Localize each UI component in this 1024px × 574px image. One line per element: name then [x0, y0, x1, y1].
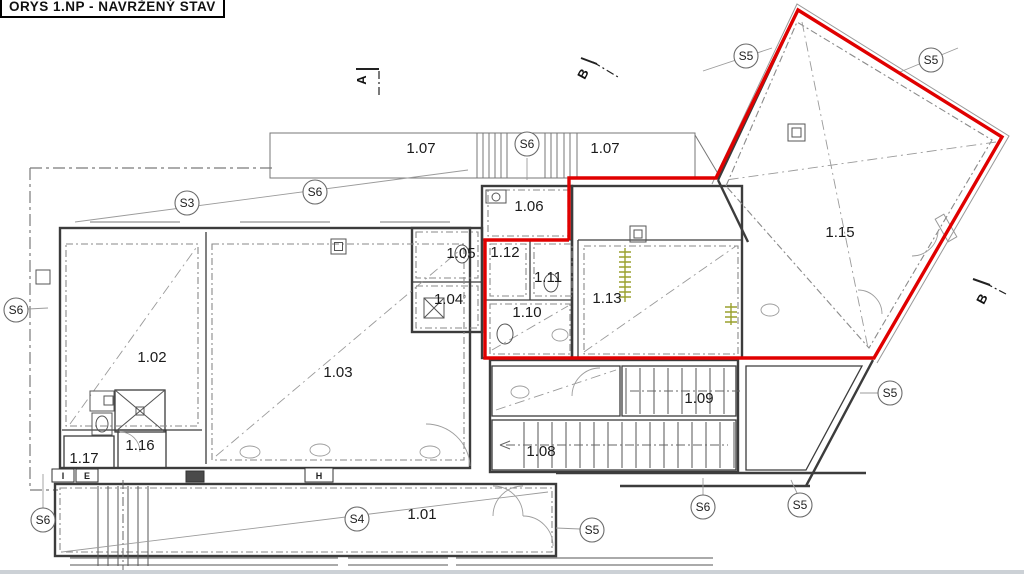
room-label-1-16: 1.16: [125, 437, 154, 454]
cut-marker-line-b: [985, 283, 1006, 294]
toilet-icon: [497, 324, 513, 344]
section-bubble-label-s6: S6: [696, 500, 711, 514]
column-icon: [331, 239, 346, 254]
section-bubble-label-s5: S5: [883, 386, 898, 400]
room-label-1-11: 1.11: [534, 269, 562, 286]
room-label-1-07: 1.07: [406, 140, 435, 157]
section-bubble-label-s6: S6: [9, 303, 24, 317]
fixtures: [36, 124, 805, 435]
floorplan-svg: 1.011.021.031.04▫1.051.061.071.071.081.0…: [0, 0, 1024, 574]
section-bubble-label-s6: S6: [308, 185, 323, 199]
section-bubble-label-s5: S5: [924, 53, 939, 67]
drawing-title: ORYS 1.NP - NAVRŽENÝ STAV: [0, 0, 225, 18]
room-label-1-12: 1.12: [490, 244, 519, 261]
room-label-1-01: 1.01: [407, 506, 436, 523]
room-label-1-15: 1.15: [825, 224, 854, 241]
wall-tag-label-i: I: [62, 471, 65, 481]
section-bubble-label-s4: S4: [350, 512, 365, 526]
section-cut-marker-a-0: A: [354, 75, 369, 85]
room-label-1-06: 1.06: [514, 198, 543, 215]
room-label-1-10: 1.10: [512, 304, 541, 321]
room-label-1-09: 1.09: [684, 390, 713, 407]
wall-tag-box-dark-2: [186, 471, 204, 482]
room-label-1-05: 1.05: [446, 245, 475, 262]
wall-tag-label-h: H: [316, 471, 323, 481]
section-cut-marker-b-1: B: [574, 66, 592, 81]
section-bubble-label-s5: S5: [793, 498, 808, 512]
terrace-strip: [270, 133, 720, 178]
room-label-1-17: 1.17: [69, 450, 98, 467]
section-bubble-label-s5: S5: [739, 49, 754, 63]
sink-counter-icon: [90, 391, 114, 411]
room-label-1-03: 1.03: [323, 364, 352, 381]
section-bubble-label-s6: S6: [36, 513, 51, 527]
room-label-1-07: 1.07: [590, 140, 619, 157]
section-cut-marker-b-2: B: [973, 291, 991, 306]
section-bubble-label-s5: S5: [585, 523, 600, 537]
wall-tag-label-e: E: [84, 471, 90, 481]
room-label-1-08: 1.08: [526, 443, 555, 460]
cut-marker-line-b: [593, 62, 618, 77]
page-edge-strip: [0, 570, 1024, 574]
section-bubble-label-s6: S6: [520, 137, 535, 151]
room-label-1-04: 1.04▫: [434, 291, 466, 308]
room-label-1-13: 1.13: [592, 290, 621, 307]
room-label-1-02: 1.02: [137, 349, 166, 366]
window-lines: [70, 222, 713, 565]
stair-centerlines: [123, 391, 740, 570]
column-icon: [788, 124, 805, 141]
floorplan-page: 1.011.021.031.04▫1.051.061.071.071.081.0…: [0, 0, 1024, 574]
section-bubble-label-s3: S3: [180, 196, 195, 210]
door-arcs: [120, 232, 938, 546]
